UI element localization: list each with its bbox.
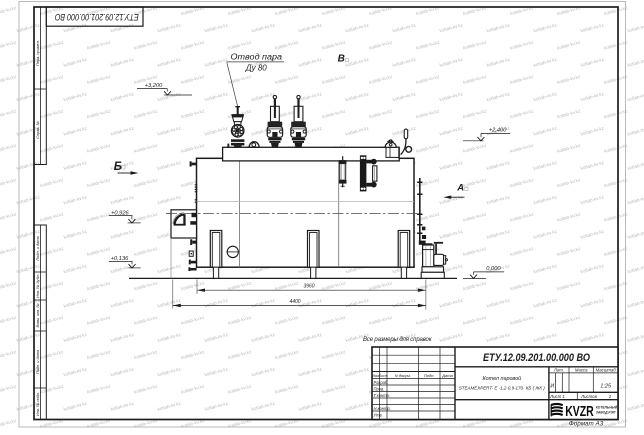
svg-text:Подп.: Подп. xyxy=(424,373,435,378)
svg-text:4400: 4400 xyxy=(289,299,300,305)
svg-text:Дата: Дата xyxy=(441,373,453,378)
svg-text:KVZR: KVZR xyxy=(565,404,594,420)
svg-text:N докум.: N докум. xyxy=(395,373,411,378)
svg-text:1:25: 1:25 xyxy=(600,383,612,389)
svg-text:Справ. №: Справ. № xyxy=(35,120,40,138)
svg-text:А: А xyxy=(456,182,464,193)
svg-text:Перв. примен.: Перв. примен. xyxy=(35,40,40,66)
svg-text:Формат А3: Формат А3 xyxy=(569,420,604,427)
svg-text:Все размеры для справок: Все размеры для справок xyxy=(363,337,433,343)
svg-text:Разраб.: Разраб. xyxy=(374,380,389,385)
svg-text:Лит.: Лит. xyxy=(553,368,564,373)
svg-text:Взам. инв. №: Взам. инв. № xyxy=(35,303,40,328)
svg-text:КОТЕЛЬНЫЙ: КОТЕЛЬНЫЙ xyxy=(596,406,618,410)
svg-text:Утв.: Утв. xyxy=(374,413,383,418)
svg-text:Отвод пара: Отвод пара xyxy=(231,52,283,61)
svg-text:ЗАВОД РЭП: ЗАВОД РЭП xyxy=(596,411,616,415)
svg-text:Ду 80: Ду 80 xyxy=(245,64,267,73)
svg-text:Н.контр.: Н.контр. xyxy=(374,406,391,411)
svg-text:STEAMEXPERT- Е -1,2-0,9-170- К: STEAMEXPERT- Е -1,2-0,9-170- КБ ( ЖК ) xyxy=(459,385,545,390)
svg-text:И: И xyxy=(550,384,554,390)
svg-text:Лист: Лист xyxy=(378,374,388,378)
svg-text:Пров.: Пров. xyxy=(374,386,385,391)
svg-text:Лист 1: Лист 1 xyxy=(549,394,565,399)
svg-text:Подп. и дата: Подп. и дата xyxy=(35,349,40,374)
svg-text:Подп. и дата: Подп. и дата xyxy=(35,235,40,260)
svg-text:ЕТУ.12.09.201.00.000 ВО: ЕТУ.12.09.201.00.000 ВО xyxy=(55,12,139,22)
svg-text:Б: Б xyxy=(114,161,122,173)
svg-text:ЕТУ.12.09.201.00.000 ВО: ЕТУ.12.09.201.00.000 ВО xyxy=(483,352,591,364)
svg-text:Масштаб: Масштаб xyxy=(596,368,617,373)
svg-text:+2,400: +2,400 xyxy=(489,128,507,134)
svg-text:Котел паровой: Котел паровой xyxy=(482,375,521,382)
svg-text:Инв. № подл.: Инв. № подл. xyxy=(35,392,40,416)
svg-text:Инв. № дубл.: Инв. № дубл. xyxy=(35,274,40,298)
svg-text:В: В xyxy=(338,53,345,64)
svg-text:0,000: 0,000 xyxy=(486,266,501,272)
svg-text:Т.контр.: Т.контр. xyxy=(374,393,391,398)
svg-text:3960: 3960 xyxy=(303,284,314,290)
svg-text:Масса: Масса xyxy=(575,368,588,373)
svg-text:Листов: Листов xyxy=(580,394,597,399)
